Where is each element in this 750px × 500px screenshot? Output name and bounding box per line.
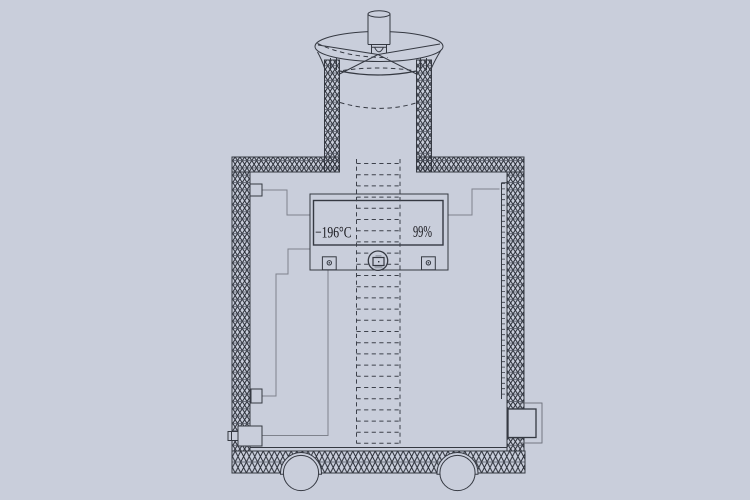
svg-text:99%: 99%	[413, 222, 432, 241]
svg-text:−196°C: −196°C	[315, 225, 352, 242]
